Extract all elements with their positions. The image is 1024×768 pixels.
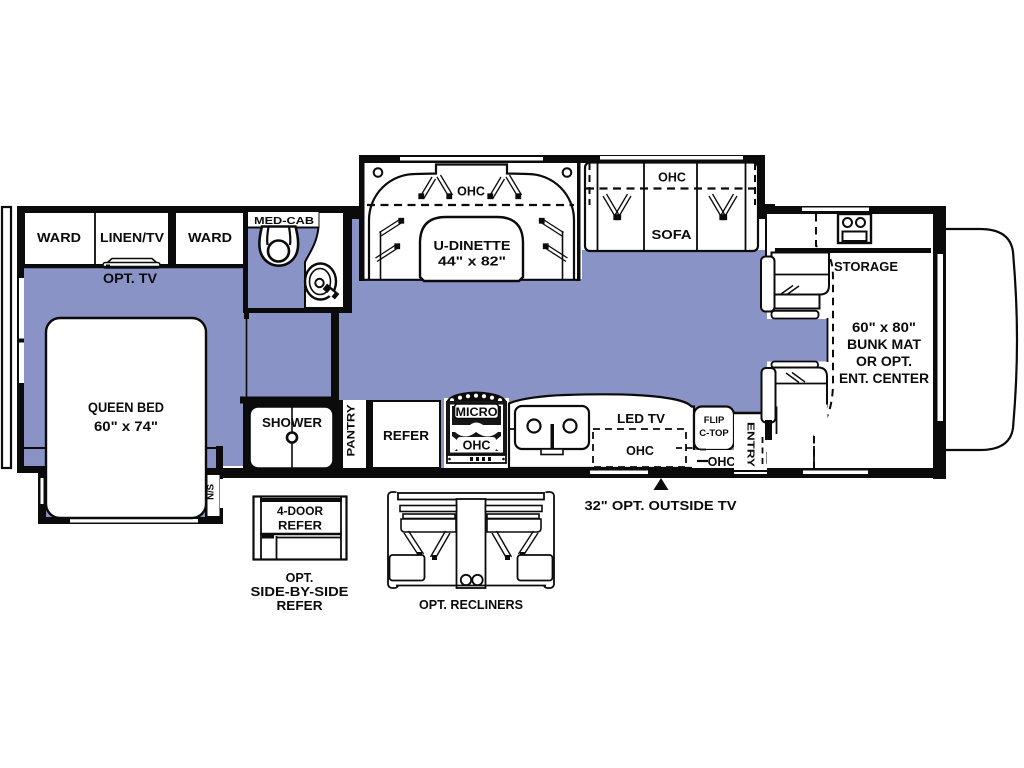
svg-text:REFER: REFER — [278, 521, 323, 533]
svg-text:QUEEN BED: QUEEN BED — [88, 400, 164, 415]
svg-text:32" OPT. OUTSIDE TV: 32" OPT. OUTSIDE TV — [585, 498, 737, 513]
svg-text:OHC: OHC — [658, 171, 686, 185]
svg-text:OHC: OHC — [708, 455, 736, 469]
svg-text:PANTRY: PANTRY — [346, 404, 358, 457]
svg-text:60" x 74": 60" x 74" — [94, 419, 158, 434]
svg-text:SOFA: SOFA — [652, 227, 693, 242]
svg-text:ENT. CENTER: ENT. CENTER — [839, 371, 929, 386]
svg-text:60" x 80": 60" x 80" — [852, 320, 916, 335]
svg-text:OPT. TV: OPT. TV — [103, 271, 157, 286]
svg-text:OHC: OHC — [463, 439, 491, 453]
svg-text:REFER: REFER — [383, 429, 429, 443]
svg-text:WARD: WARD — [37, 230, 81, 245]
svg-text:OPT. RECLINERS: OPT. RECLINERS — [419, 598, 523, 612]
svg-text:4-DOOR: 4-DOOR — [277, 506, 324, 518]
svg-text:LED TV: LED TV — [617, 411, 665, 426]
svg-text:SHOWER: SHOWER — [262, 416, 322, 430]
svg-text:C-TOP: C-TOP — [699, 428, 729, 439]
svg-text:OHC: OHC — [626, 444, 654, 458]
svg-text:LINEN/TV: LINEN/TV — [100, 231, 165, 245]
svg-text:ENTRY: ENTRY — [745, 422, 756, 467]
svg-text:N/S: N/S — [206, 484, 217, 500]
svg-text:WARD: WARD — [188, 230, 232, 245]
svg-text:OHC: OHC — [457, 185, 485, 199]
svg-text:FLIP: FLIP — [704, 415, 725, 426]
svg-text:OPT.: OPT. — [286, 571, 314, 585]
svg-text:MICRO: MICRO — [456, 405, 498, 419]
svg-text:OR OPT.: OR OPT. — [856, 354, 912, 369]
svg-text:SIDE-BY-SIDE: SIDE-BY-SIDE — [251, 585, 349, 599]
svg-text:44" x 82": 44" x 82" — [438, 254, 506, 269]
svg-text:REFER: REFER — [277, 599, 323, 613]
svg-text:U-DINETTE: U-DINETTE — [434, 238, 511, 253]
svg-text:BUNK MAT: BUNK MAT — [847, 337, 922, 352]
svg-text:STORAGE: STORAGE — [834, 259, 898, 274]
